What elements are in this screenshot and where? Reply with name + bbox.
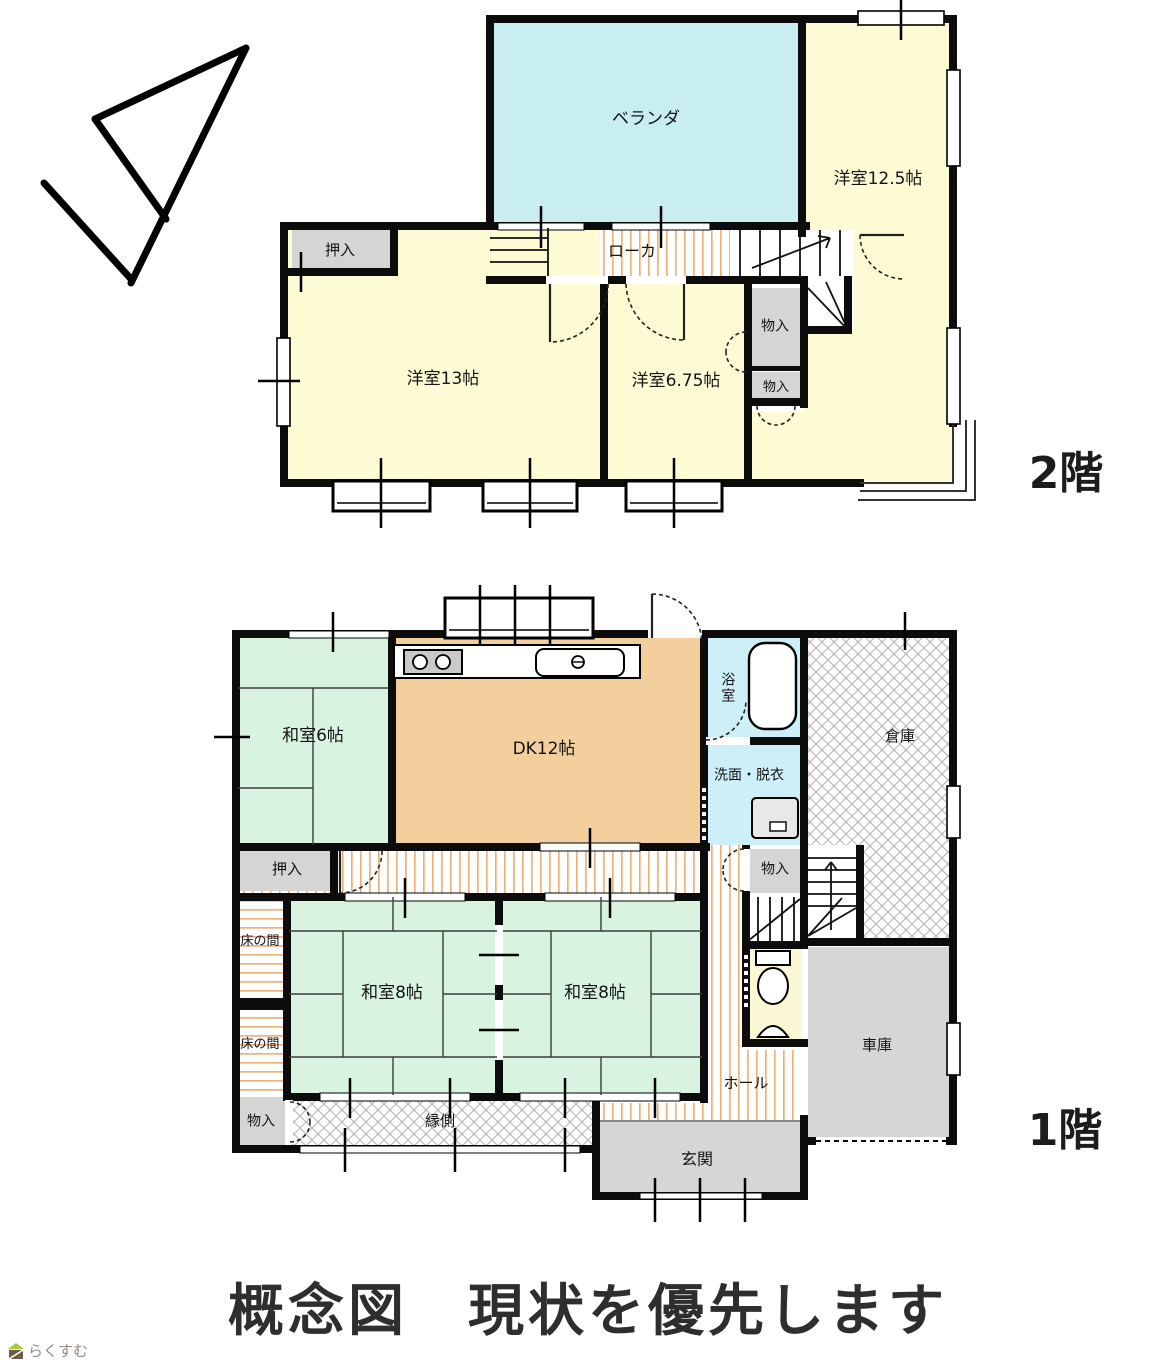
label-western-13: 洋室13帖	[407, 371, 480, 389]
label-japanese-8-right: 和室8帖	[564, 985, 626, 1003]
floorplan-page: ベランダ 洋室12.5帖 ローカ 押入 洋室13帖 洋室6.75帖 物入 物入 …	[0, 0, 1176, 1369]
bathtub-icon	[749, 643, 796, 729]
label-western-6-75: 洋室6.75帖	[632, 373, 721, 391]
kitchen-counter	[394, 645, 640, 678]
label-bathroom: 浴室	[720, 672, 735, 704]
floorplan-drawing	[0, 0, 1176, 1369]
label-alcove-upper: 床の間	[240, 935, 279, 949]
label-japanese-6: 和室6帖	[282, 728, 344, 746]
north-arrow-icon	[44, 48, 246, 283]
floor1-label: 1階	[1028, 1108, 1103, 1154]
label-corridor-2f: ローカ	[608, 244, 656, 261]
label-storage-upper-2f: 物入	[761, 320, 789, 335]
logo-text: らくすむ	[28, 1340, 88, 1361]
floor1-plan	[214, 585, 960, 1222]
label-warehouse: 倉庫	[885, 729, 915, 745]
label-entrance: 玄関	[681, 1152, 713, 1169]
label-closet-2f: 押入	[325, 243, 355, 259]
label-storage-lower-2f: 物入	[763, 381, 789, 395]
rakusumu-logo: らくすむ	[8, 1340, 88, 1361]
floor2-label: 2階	[1029, 451, 1104, 497]
label-japanese-8-left: 和室8帖	[361, 985, 423, 1003]
label-dk: DK12帖	[513, 741, 576, 759]
caption-title: 概念図 現状を優先します	[0, 1266, 1176, 1347]
label-western-12-5: 洋室12.5帖	[834, 171, 923, 189]
label-washroom: 洗面・脱衣	[714, 769, 784, 784]
label-veranda: ベランダ	[612, 111, 680, 129]
label-engawa: 縁側	[425, 1114, 455, 1130]
room-alcove-lower	[238, 1012, 285, 1095]
label-storage-middle: 物入	[761, 863, 789, 878]
floor2-plan	[258, 0, 975, 528]
label-closet-1f: 押入	[272, 862, 302, 878]
washbasin-icon	[752, 798, 798, 838]
label-storage-bottom: 物入	[247, 1115, 275, 1130]
rakusumu-logo-icon	[8, 1343, 24, 1359]
label-garage: 車庫	[862, 1038, 892, 1054]
label-hall: ホール	[723, 1076, 768, 1092]
stair-upper-1f	[806, 845, 858, 940]
label-alcove-lower: 床の間	[240, 1038, 279, 1052]
